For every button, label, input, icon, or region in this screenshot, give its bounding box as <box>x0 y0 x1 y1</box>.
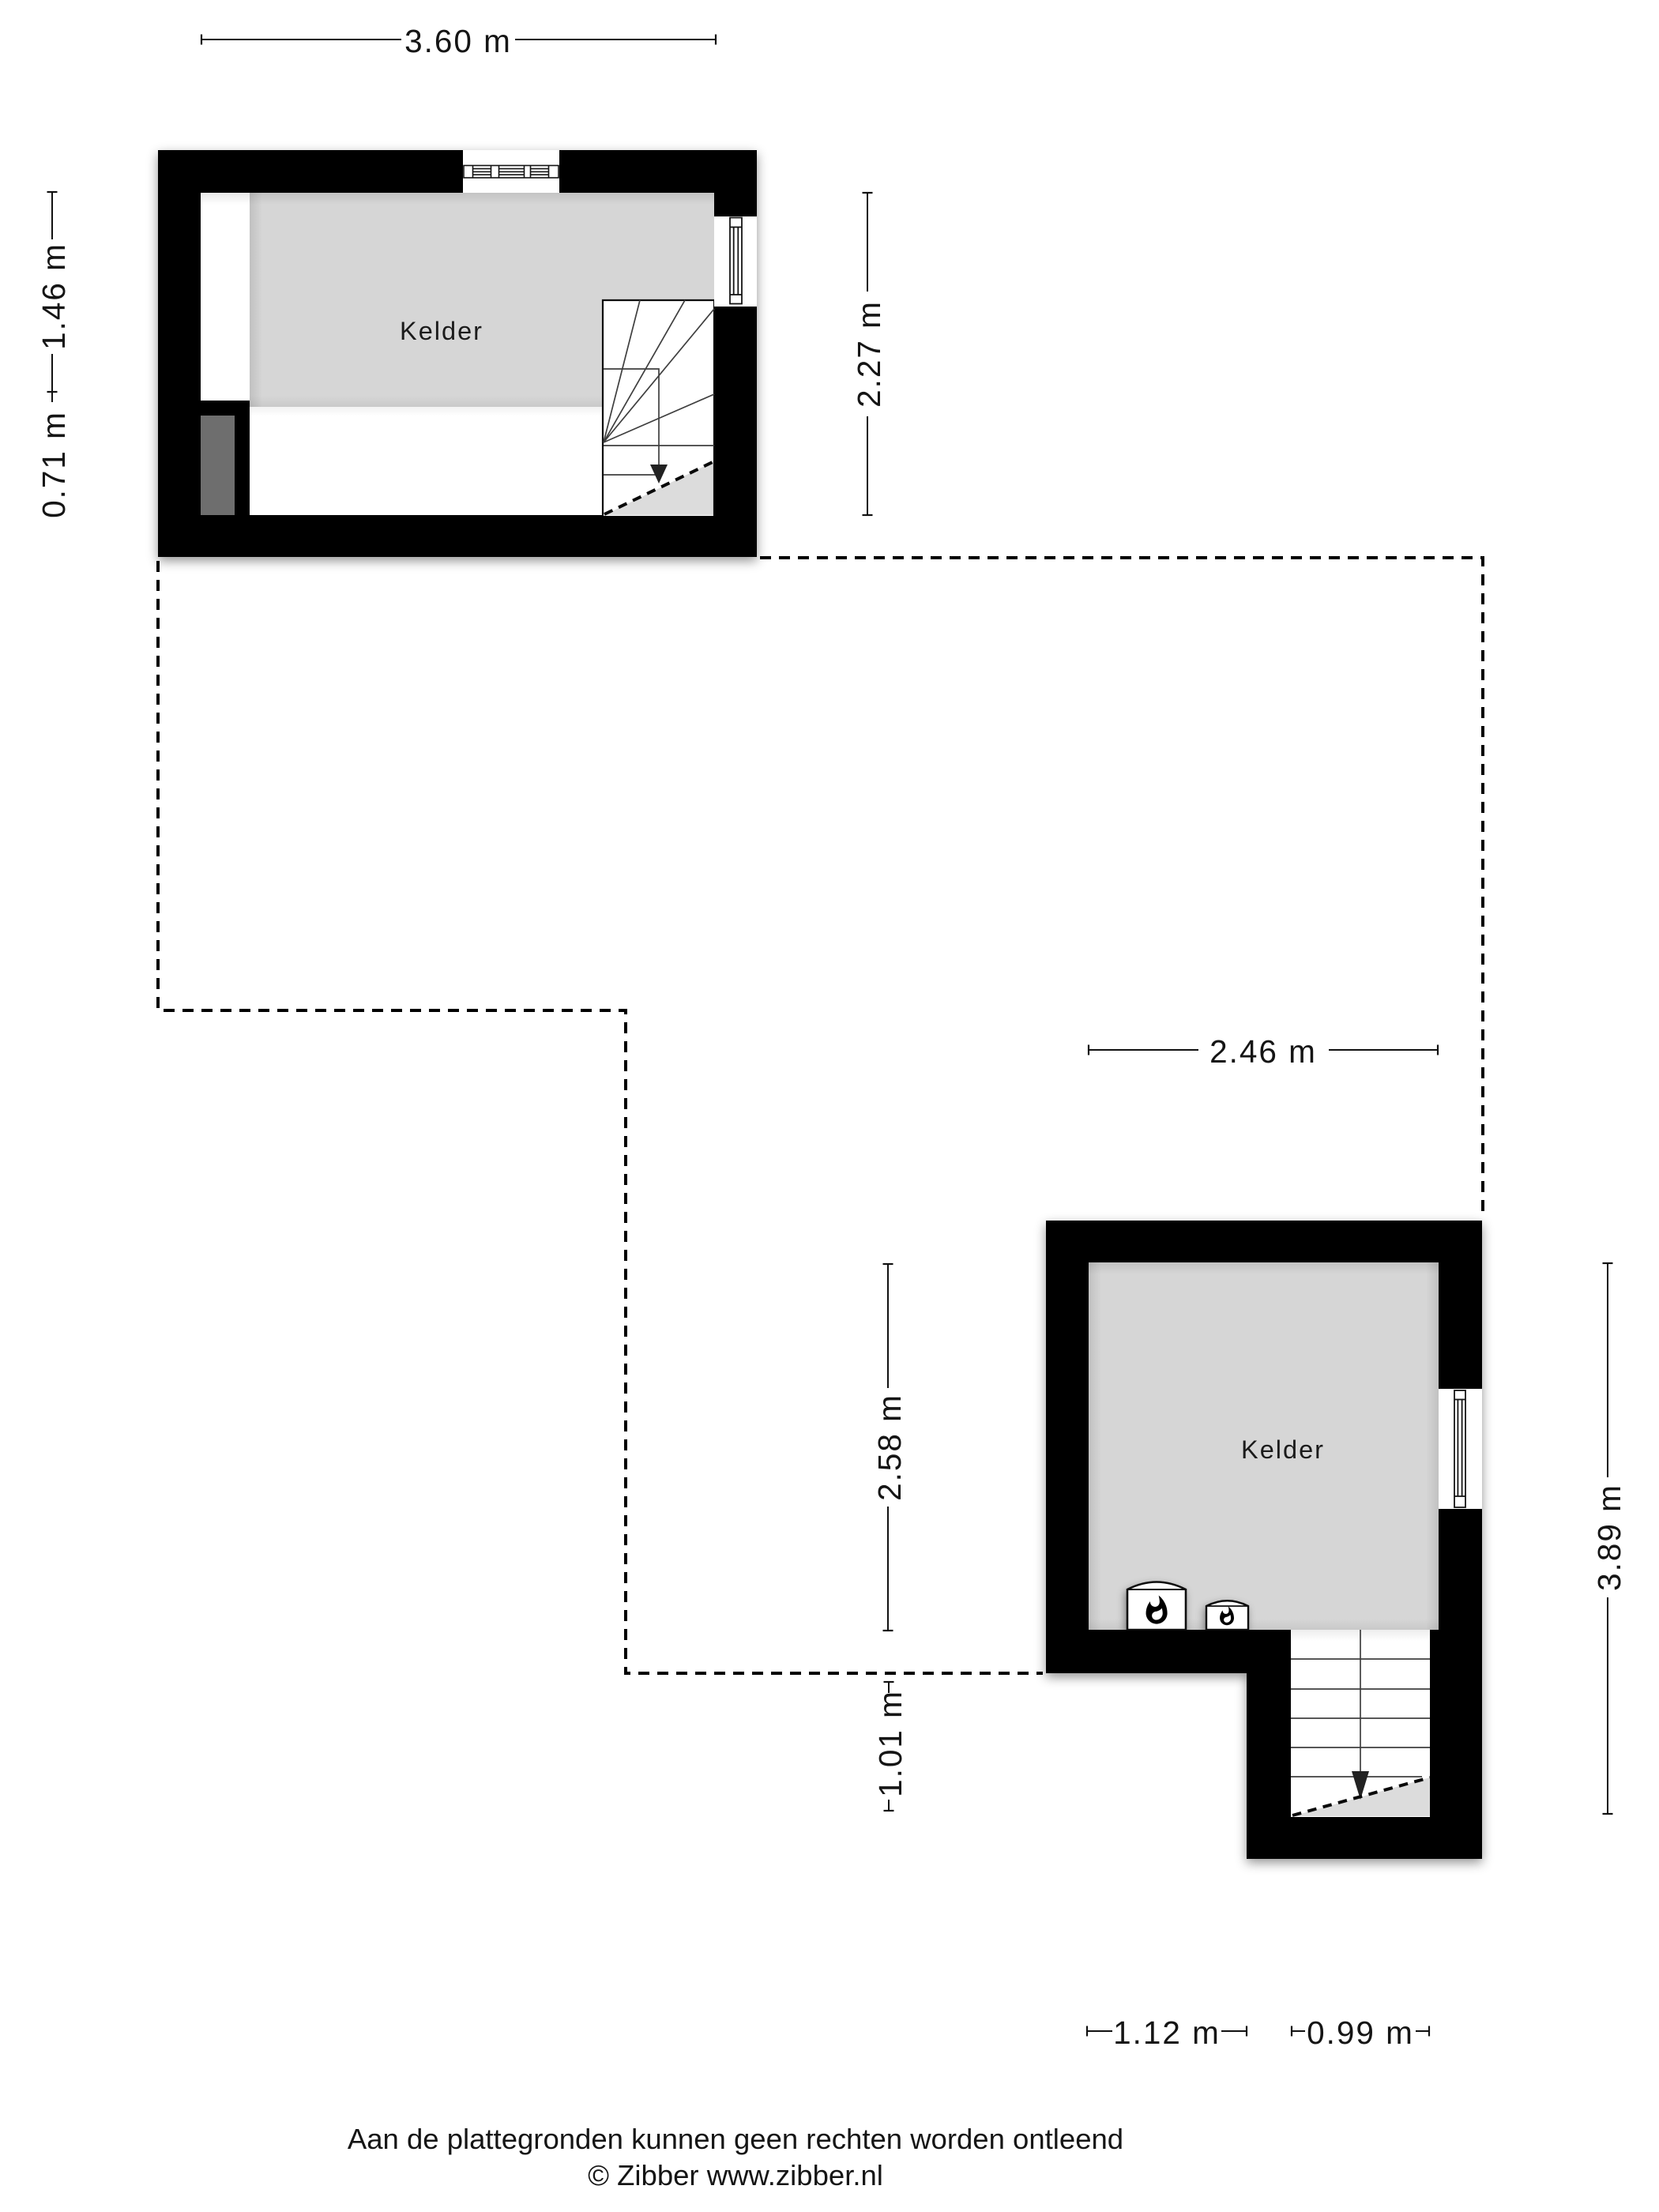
svg-text:0.99 m: 0.99 m <box>1307 2014 1414 2051</box>
svg-text:3.89 m: 3.89 m <box>1591 1484 1627 1591</box>
svg-text:Kelder: Kelder <box>400 317 483 345</box>
svg-text:2.27 m: 2.27 m <box>851 300 887 408</box>
svg-text:Kelder: Kelder <box>1241 1435 1325 1464</box>
svg-text:© Zibber www.zibber.nl: © Zibber www.zibber.nl <box>588 2159 883 2191</box>
svg-text:1.46 m: 1.46 m <box>36 243 72 350</box>
svg-text:3.60 m: 3.60 m <box>404 23 512 59</box>
svg-text:0.71 m: 0.71 m <box>36 411 72 518</box>
svg-text:2.58 m: 2.58 m <box>871 1394 908 1501</box>
svg-text:Aan de plattegronden kunnen ge: Aan de plattegronden kunnen geen rechten… <box>348 2123 1123 2155</box>
svg-text:2.46 m: 2.46 m <box>1209 1033 1317 1070</box>
svg-text:1.01 m: 1.01 m <box>872 1690 908 1797</box>
svg-text:1.12 m: 1.12 m <box>1113 2014 1221 2051</box>
